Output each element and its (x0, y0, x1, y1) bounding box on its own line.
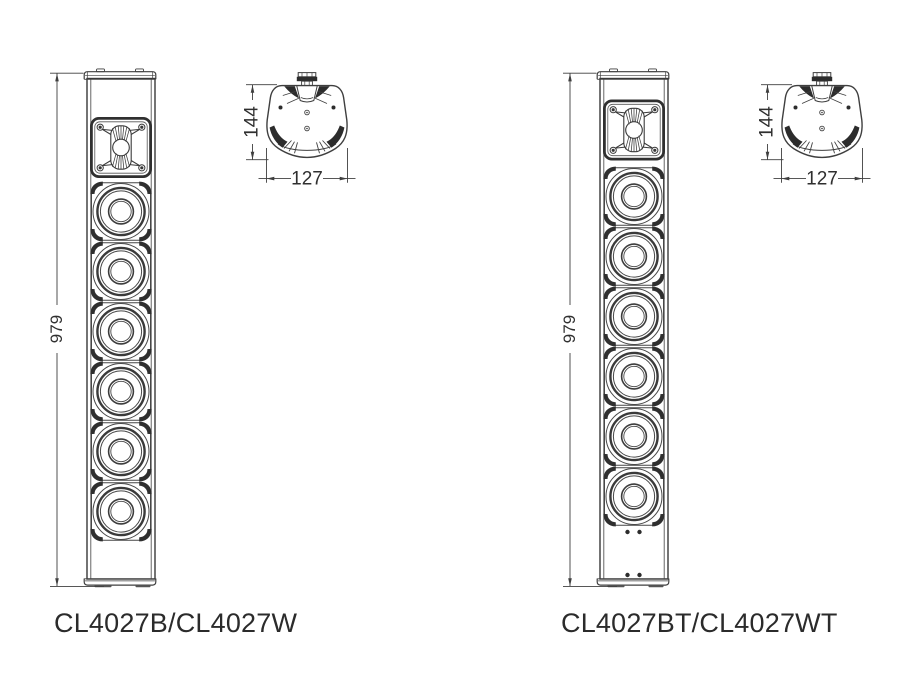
right-top-view (782, 73, 862, 158)
tweeter-horn (91, 118, 150, 176)
cabinet-top-cap (597, 69, 669, 79)
dim-144-right: 144 (757, 106, 778, 138)
left-depth-dimension: 144 (242, 85, 278, 160)
woofer-6 (92, 483, 151, 541)
model-label-left: CL4027B/CL4027W (54, 608, 297, 639)
woofer-2 (605, 228, 664, 286)
top-view-drawing (267, 73, 347, 158)
woofer-4 (605, 348, 664, 406)
left-top-view (267, 73, 347, 158)
dim-979-left: 979 (47, 315, 66, 343)
right-speaker-front-view (597, 69, 669, 587)
dim-127-left: 127 (291, 168, 323, 189)
dim-127-right: 127 (806, 168, 838, 189)
woofer-6 (605, 468, 664, 526)
woofer-5 (92, 423, 151, 481)
top-view-drawing (782, 73, 862, 158)
left-width-dimension: 127 (259, 148, 356, 189)
transformer-mount-holes (625, 530, 641, 577)
woofer-5 (605, 408, 664, 466)
cabinet-top-cap (84, 69, 156, 79)
model-label-right: CL4027BT/CL4027WT (561, 608, 838, 639)
speaker-spec-drawing: 979 144 127 (0, 0, 900, 684)
dim-979-right: 979 (560, 315, 579, 343)
right-width-dimension: 127 (774, 148, 871, 189)
technical-drawing-svg: 979 144 127 (0, 0, 900, 684)
tweeter-horn (604, 101, 663, 159)
woofer-1 (605, 168, 664, 226)
dim-144-left: 144 (242, 106, 263, 138)
right-height-dimension: 979 (560, 73, 617, 586)
cabinet-base (84, 579, 156, 588)
woofer-2 (92, 243, 151, 301)
left-height-dimension: 979 (47, 73, 104, 586)
woofer-3 (605, 288, 664, 346)
left-speaker-front-view (84, 69, 156, 587)
woofer-1 (92, 183, 151, 241)
woofer-4 (92, 363, 151, 421)
right-depth-dimension: 144 (757, 85, 793, 160)
cabinet-base (597, 579, 669, 588)
woofer-3 (92, 303, 151, 361)
